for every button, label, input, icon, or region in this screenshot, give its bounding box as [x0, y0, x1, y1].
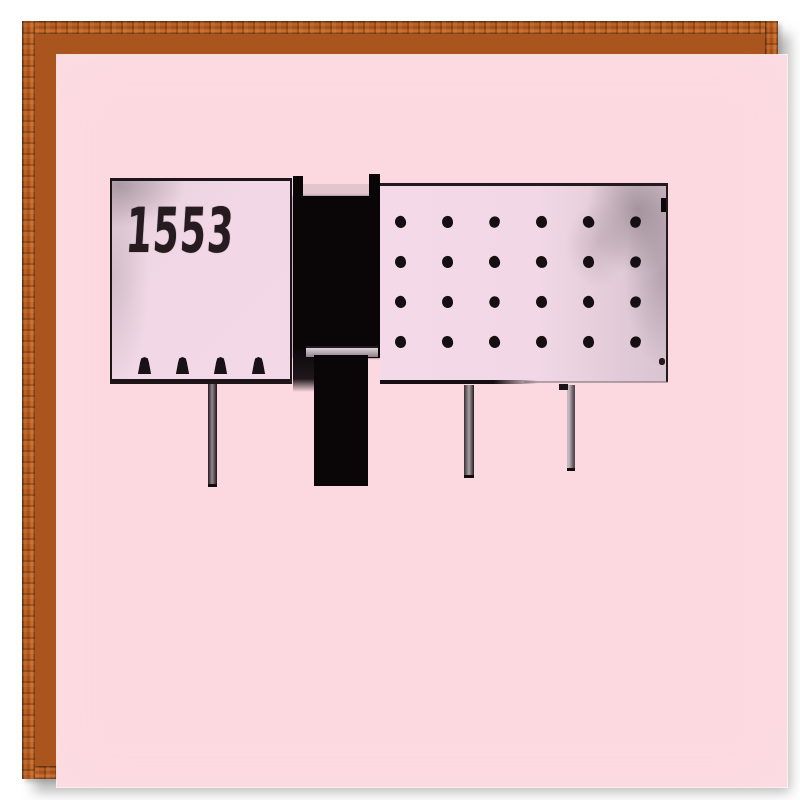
window-dot	[629, 215, 642, 228]
building-number: 1553	[124, 200, 236, 262]
right-edge-mark	[661, 198, 666, 212]
central-tower	[293, 196, 380, 358]
knob	[213, 357, 228, 374]
window-dot	[441, 215, 455, 229]
right-wing-leg-1	[464, 385, 474, 478]
window-dot	[582, 255, 596, 269]
window-dot	[441, 255, 455, 269]
window-dot	[629, 255, 642, 268]
left-wing-leg	[208, 384, 217, 487]
window-dot	[441, 335, 455, 349]
window-dot	[629, 295, 642, 308]
knob	[175, 357, 190, 374]
knob	[137, 357, 152, 374]
window-dot	[535, 335, 549, 349]
photo-of-framed-artwork: 1553	[0, 0, 800, 800]
window-dot	[487, 254, 502, 270]
window-grid	[395, 216, 677, 376]
window-dot	[394, 255, 408, 269]
central-column	[314, 355, 368, 486]
window-dot	[581, 294, 596, 310]
right-wing-bottom-edge-faint	[524, 381, 668, 383]
knob	[251, 357, 266, 374]
window-dot	[535, 215, 549, 229]
window-dot	[581, 214, 596, 230]
window-dot	[582, 335, 596, 349]
window-dot	[393, 294, 408, 310]
window-dot	[487, 334, 502, 350]
window-dot	[488, 295, 501, 308]
building-artwork: 1553	[0, 0, 800, 800]
window-dot	[488, 215, 501, 228]
knob-row	[137, 357, 266, 374]
leg-bracket	[559, 384, 568, 390]
window-dot	[441, 295, 455, 309]
window-dot	[535, 255, 549, 269]
window-dot	[535, 295, 549, 309]
window-dot	[393, 214, 408, 230]
window-dot	[394, 335, 408, 349]
right-wing-bottom-edge	[380, 380, 538, 384]
right-wing-leg-2	[567, 385, 575, 471]
window-dot	[629, 335, 642, 348]
tower-top-shading	[303, 184, 369, 196]
